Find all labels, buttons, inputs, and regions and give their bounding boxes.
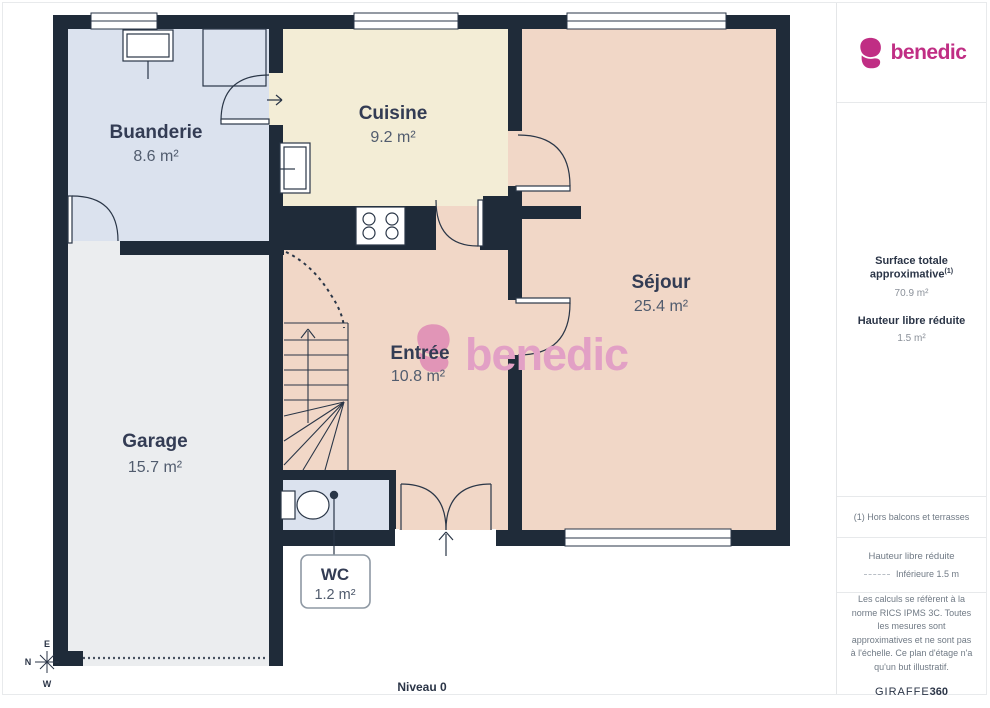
giraffe-label: GIRAFFE	[875, 686, 930, 698]
surface-footnote-marker: (1)	[945, 268, 954, 275]
window-sejour-bottom	[565, 529, 731, 546]
surface-total-title: Surface totale approximative(1)	[849, 255, 974, 283]
room-area-cuisine: 9.2 m²	[370, 129, 416, 146]
reduced-height-value: 1.5 m²	[897, 333, 925, 344]
room-area-buanderie: 8.6 m²	[133, 148, 179, 165]
footnote-text: (1) Hors balcons et terrasses	[854, 512, 970, 522]
summary-section: Surface totale approximative(1) 70.9 m² …	[837, 103, 986, 497]
floorplan-canvas: WC 1.2 m² benedic Buanderie 8.6 m² Cuisi…	[3, 3, 836, 694]
window-buanderie	[91, 13, 157, 29]
floorplan-page: WC 1.2 m² benedic Buanderie 8.6 m² Cuisi…	[2, 2, 987, 695]
window-cuisine	[354, 13, 458, 29]
compass-w: W	[43, 679, 52, 689]
legend-dash-sample	[864, 574, 890, 575]
room-name-entree: Entrée	[390, 343, 449, 364]
room-name-buanderie: Buanderie	[110, 122, 203, 143]
legend-title: Hauteur libre réduite	[868, 551, 954, 562]
info-sidebar: benedic Surface totale approximative(1) …	[836, 3, 986, 694]
brand-header: benedic	[837, 3, 986, 103]
level-label: Niveau 0	[397, 680, 447, 694]
window-sejour-top	[567, 13, 726, 29]
watermark-text: benedic	[465, 329, 628, 380]
room-area-sejour: 25.4 m²	[634, 298, 689, 315]
room-area-wc: 1.2 m²	[314, 587, 355, 603]
floor-garage	[53, 241, 283, 666]
entrance-arrow	[439, 532, 453, 556]
toilet-icon	[281, 491, 329, 519]
room-area-garage: 15.7 m²	[128, 459, 183, 476]
brand-name: benedic	[891, 41, 967, 65]
legend-section: Hauteur libre réduite Inférieure 1.5 m	[837, 538, 986, 593]
benedic-logo-icon	[857, 37, 884, 69]
legend-item-label: Inférieure 1.5 m	[896, 569, 959, 579]
stove-icon	[356, 207, 405, 245]
compass-e: E	[44, 639, 50, 649]
room-area-entree: 10.8 m²	[391, 368, 446, 385]
giraffe-360: 360	[930, 686, 948, 698]
giraffe360-brand: GIRAFFE360	[875, 686, 948, 698]
kitchen-sink-icon	[280, 143, 310, 193]
compass-n: N	[25, 657, 32, 667]
disclaimer-section: Les calculs se réfèrent à la norme RICS …	[837, 593, 986, 698]
room-name-sejour: Séjour	[631, 272, 691, 293]
room-name-wc: WC	[321, 565, 349, 584]
room-name-cuisine: Cuisine	[359, 103, 428, 124]
reduced-height-title: Hauteur libre réduite	[858, 315, 966, 329]
footnote-section: (1) Hors balcons et terrasses	[837, 497, 986, 538]
surface-total-value: 70.9 m²	[895, 288, 929, 299]
disclaimer-text: Les calculs se réfèrent à la norme RICS …	[849, 593, 974, 674]
room-name-garage: Garage	[122, 431, 187, 452]
